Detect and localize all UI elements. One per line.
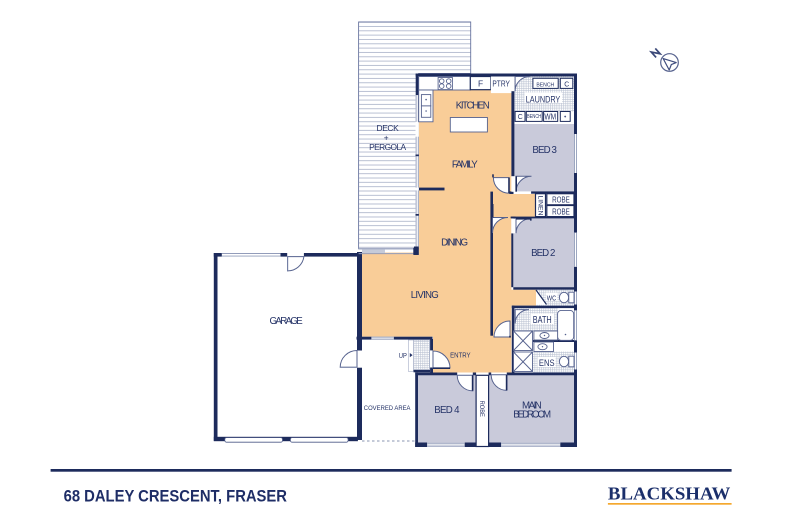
svg-text:GARAGE: GARAGE <box>270 316 304 327</box>
svg-text:PTRY: PTRY <box>492 79 510 89</box>
svg-text:WC: WC <box>547 295 557 302</box>
svg-text:C: C <box>518 114 523 121</box>
svg-text:FAMILY: FAMILY <box>452 159 478 170</box>
svg-text:ROBE: ROBE <box>552 196 570 205</box>
svg-text:BENCH: BENCH <box>527 114 542 120</box>
svg-text:LINEN: LINEN <box>536 196 543 216</box>
svg-text:DECK: DECK <box>377 123 400 133</box>
svg-text:BED 3: BED 3 <box>532 145 557 156</box>
svg-text:ROBE: ROBE <box>552 208 570 217</box>
svg-text:ENS: ENS <box>539 358 555 368</box>
svg-text:UP: UP <box>399 353 407 360</box>
svg-text:BATH: BATH <box>533 315 552 326</box>
svg-text:C: C <box>564 82 569 89</box>
svg-text:BEDROOM: BEDROOM <box>513 409 551 420</box>
svg-text:DINING: DINING <box>441 238 468 249</box>
svg-text:F: F <box>478 78 483 88</box>
svg-text:BED 4: BED 4 <box>434 405 460 416</box>
svg-text:LAUNDRY: LAUNDRY <box>526 94 561 104</box>
svg-text:WM: WM <box>544 112 556 121</box>
svg-text:ROBE: ROBE <box>478 401 485 417</box>
svg-text:ENTRY: ENTRY <box>450 353 471 360</box>
svg-text:BENCH: BENCH <box>536 82 554 88</box>
svg-text:LIVING: LIVING <box>411 290 439 301</box>
svg-text:BED 2: BED 2 <box>531 248 555 259</box>
svg-text:PERGOLA: PERGOLA <box>369 142 406 152</box>
svg-text:COVERED AREA: COVERED AREA <box>364 405 411 412</box>
svg-text:+: + <box>564 115 567 120</box>
svg-text:68 DALEY CRESCENT, FRASER: 68 DALEY CRESCENT, FRASER <box>64 487 287 506</box>
svg-text:BLACKSHAW: BLACKSHAW <box>608 483 730 503</box>
svg-text:KITCHEN: KITCHEN <box>456 101 490 112</box>
